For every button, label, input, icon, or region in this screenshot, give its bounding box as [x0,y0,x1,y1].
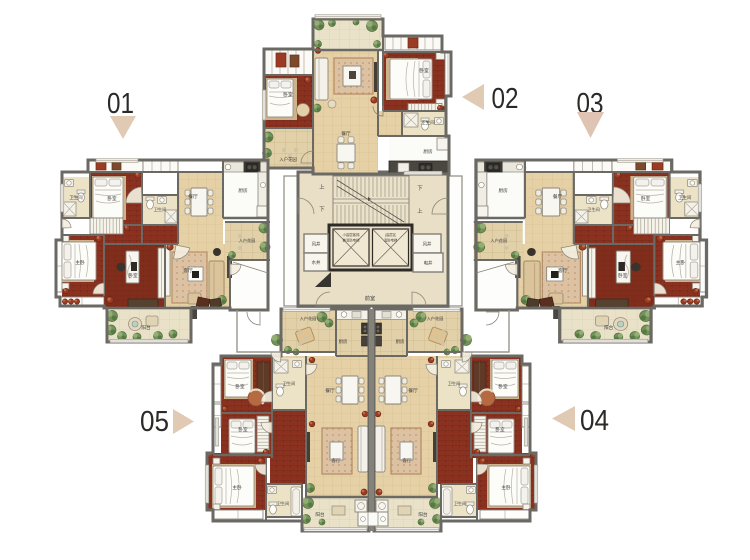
svg-text:01: 01 [107,88,134,120]
svg-text:客厅: 客厅 [183,267,193,274]
svg-text:04: 04 [580,405,609,437]
svg-text:卧室: 卧室 [419,67,429,74]
svg-text:卫生间: 卫生间 [454,500,467,507]
svg-text:餐厅: 餐厅 [408,387,418,394]
svg-text:客厅: 客厅 [402,457,412,464]
svg-text:阳台: 阳台 [604,324,614,331]
svg-text:上: 上 [417,207,423,215]
svg-text:卫生间: 卫生间 [154,206,167,213]
svg-text:卫生间: 卫生间 [283,380,296,387]
svg-text:卫生间: 卫生间 [448,380,461,387]
svg-text:小高层客梯: 小高层客梯 [343,232,361,237]
svg-text:卫生间: 卫生间 [678,194,691,201]
svg-text:下: 下 [417,185,423,192]
svg-text:兼消防电梯: 兼消防电梯 [343,238,361,243]
svg-text:主卧: 主卧 [501,484,511,491]
svg-text:餐厅: 餐厅 [341,130,351,137]
svg-text:卧室: 卧室 [641,195,651,202]
svg-text:水井: 水井 [312,259,321,266]
svg-text:厨房: 厨房 [396,338,405,345]
svg-text:卫生间: 卫生间 [421,119,434,126]
svg-text:入户花园: 入户花园 [279,156,297,163]
svg-text:厨房: 厨房 [339,338,348,345]
svg-text:风井: 风井 [312,241,321,248]
svg-text:阳台: 阳台 [418,511,428,518]
svg-text:(高层区: (高层区 [385,232,397,237]
svg-text:电井: 电井 [424,260,433,267]
svg-text:上: 上 [319,183,325,191]
svg-text:卧室: 卧室 [235,383,245,390]
svg-text:入户花园: 入户花园 [490,237,507,244]
svg-text:客厅: 客厅 [331,457,341,464]
svg-text:餐厅: 餐厅 [188,193,198,200]
svg-text:卧室: 卧室 [238,426,248,433]
svg-text:厨房: 厨房 [499,187,509,194]
svg-text:卫生间: 卫生间 [587,206,600,213]
svg-text:05: 05 [140,406,169,438]
svg-text:入户花园: 入户花园 [427,315,444,322]
svg-text:厨房: 厨房 [423,148,433,155]
svg-text:餐厅: 餐厅 [553,193,563,200]
svg-text:消防电梯: 消防电梯 [384,238,398,243]
svg-text:下: 下 [319,206,325,213]
svg-text:主卧: 主卧 [75,259,85,266]
svg-text:卫生间: 卫生间 [69,194,82,201]
svg-text:卫生间: 卫生间 [277,500,290,507]
svg-text:卧室: 卧室 [283,91,293,98]
svg-text:卧室: 卧室 [498,383,508,390]
svg-text:风井: 风井 [423,241,432,248]
svg-text:卧室: 卧室 [618,272,628,279]
svg-text:02: 02 [492,83,519,115]
svg-text:客厅: 客厅 [558,267,568,274]
svg-text:前室: 前室 [365,294,375,302]
svg-text:餐厅: 餐厅 [325,387,335,394]
svg-text:卧室: 卧室 [128,272,138,279]
svg-text:卧室: 卧室 [495,426,505,433]
svg-text:厨房: 厨房 [238,187,248,194]
svg-text:阳台: 阳台 [141,324,151,331]
svg-text:阳台: 阳台 [315,511,325,518]
svg-text:主卧: 主卧 [232,484,242,491]
svg-text:入户花园: 入户花园 [300,315,317,322]
svg-text:入户花园: 入户花园 [239,237,256,244]
svg-text:卧室: 卧室 [107,195,117,202]
svg-text:主卧: 主卧 [676,259,686,266]
